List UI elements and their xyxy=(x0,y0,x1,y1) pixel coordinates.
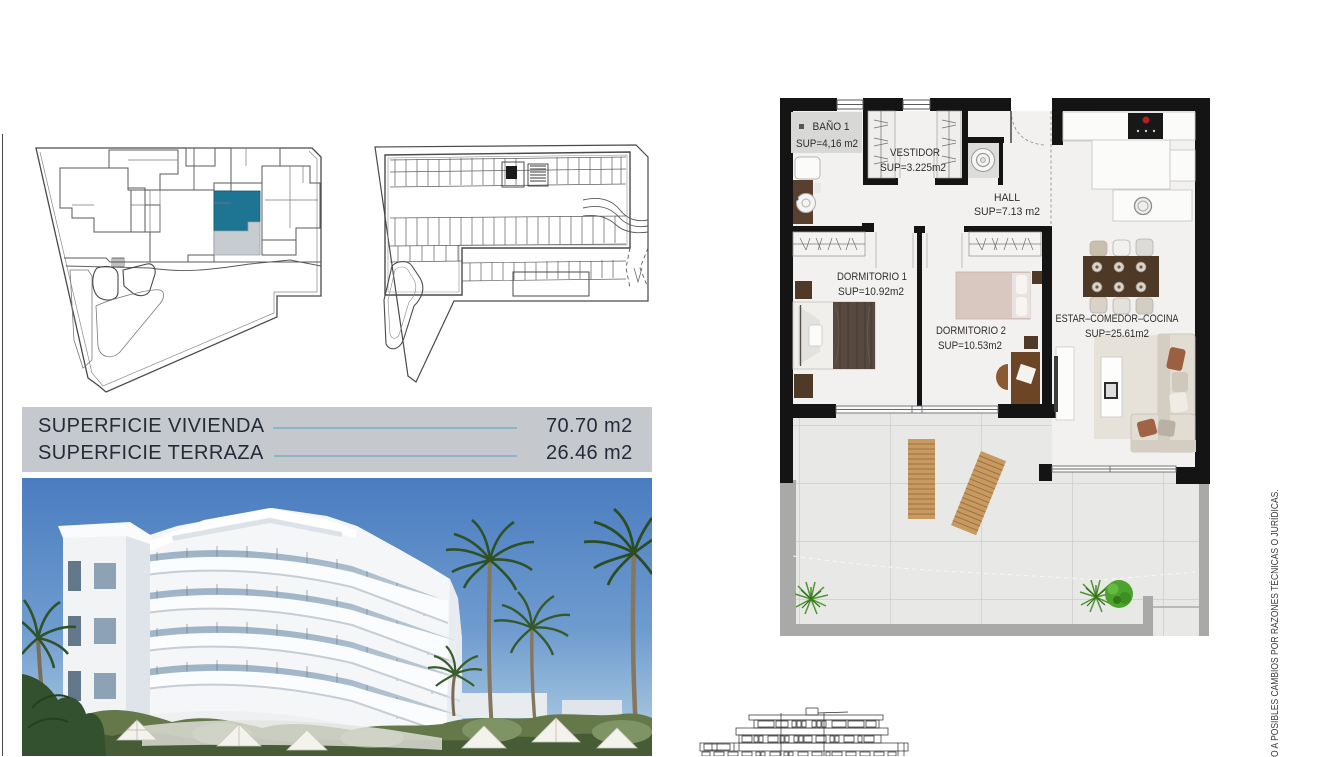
svg-text:SUP=10.53m2: SUP=10.53m2 xyxy=(938,340,1002,352)
svg-text:HALL: HALL xyxy=(994,192,1020,204)
svg-text:ESTAR–COMEDOR–COCINA: ESTAR–COMEDOR–COCINA xyxy=(1056,313,1180,325)
svg-text:BAÑO 1: BAÑO 1 xyxy=(813,120,850,133)
svg-text:DORMITORIO 2: DORMITORIO 2 xyxy=(936,325,1006,337)
svg-text:VESTIDOR: VESTIDOR xyxy=(890,147,940,159)
svg-text:SUP=7.13 m2: SUP=7.13 m2 xyxy=(974,206,1040,218)
svg-text:SUP=25.61m2: SUP=25.61m2 xyxy=(1085,328,1149,340)
svg-text:SUP=10.92m2: SUP=10.92m2 xyxy=(838,286,904,298)
svg-text:SUP=3.225m2: SUP=3.225m2 xyxy=(880,162,946,174)
svg-text:SUP=4,16 m2: SUP=4,16 m2 xyxy=(796,138,858,150)
svg-text:DORMITORIO 1: DORMITORIO 1 xyxy=(837,271,907,283)
